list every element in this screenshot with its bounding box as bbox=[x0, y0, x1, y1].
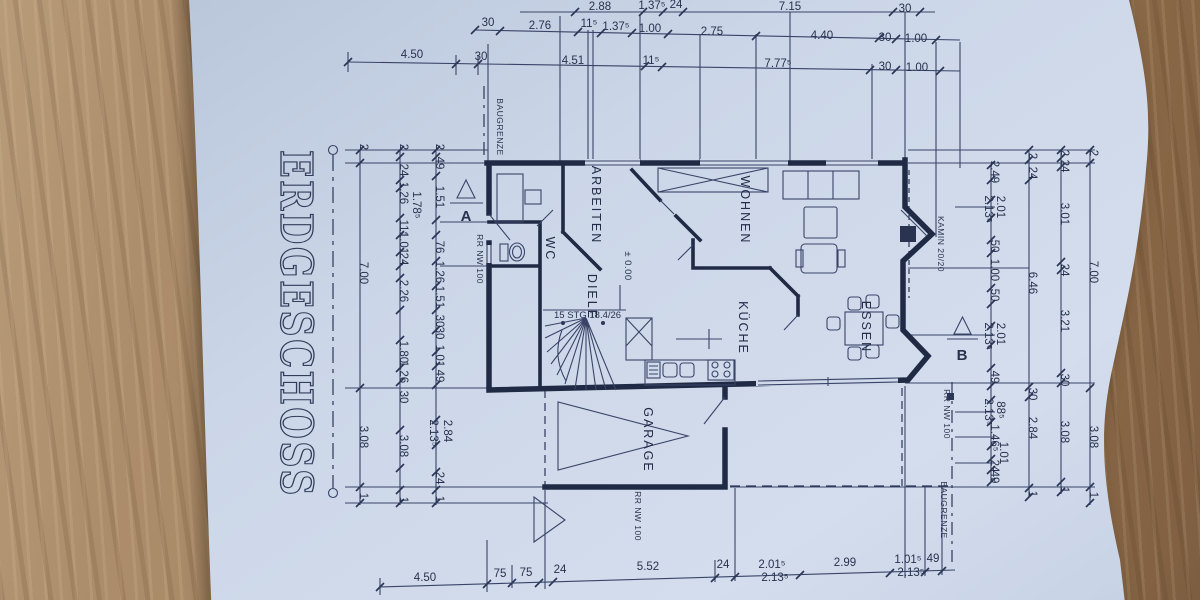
window-wc bbox=[485, 245, 493, 263]
dim-label: 24 bbox=[717, 559, 730, 571]
rr-label-right: RR NW 100 bbox=[942, 389, 952, 439]
dim-label: 2 bbox=[1087, 150, 1099, 156]
room-label-garage: GARAGE bbox=[641, 407, 655, 473]
dim-label: 1 bbox=[397, 497, 409, 503]
dim-label: 1 bbox=[1026, 491, 1038, 497]
dim-label: 24 bbox=[397, 253, 409, 266]
baugrenze-label-bottom: BAUGRENZE bbox=[939, 481, 949, 538]
dim-label: 7.77⁵ bbox=[764, 58, 791, 70]
dim-label: 50 bbox=[988, 240, 1000, 253]
dim-label: 2.13⁵ bbox=[982, 322, 994, 349]
dim-label: 2.99 bbox=[834, 557, 856, 569]
kamin-chimney-block bbox=[900, 226, 916, 242]
dim-label: 2.26 bbox=[397, 280, 409, 302]
rr-label-entry: RR NW 100 bbox=[475, 234, 485, 284]
dim-label: 1.51 bbox=[433, 186, 445, 208]
window-top-3 bbox=[826, 159, 878, 167]
level-label: ± 0.00 bbox=[622, 251, 633, 280]
dim-label: 1.37⁵ bbox=[638, 0, 665, 12]
dim-label: 3.08 bbox=[1087, 426, 1099, 448]
dim-label: 30 bbox=[397, 391, 409, 404]
dim-label: 24 bbox=[554, 564, 567, 576]
photo-of-floor-plan: ERDGESCHOSS 2.88 1.37⁵ 24 7.15 30 30 2.7… bbox=[0, 0, 1200, 600]
dim-label: 2 bbox=[433, 144, 445, 150]
dim-label: 1 bbox=[357, 493, 369, 499]
dim-label: 30 bbox=[879, 61, 892, 73]
dim-label: 50 bbox=[988, 289, 1000, 302]
stairs-label: 15 STG 18.4/26 bbox=[554, 310, 621, 321]
dim-label: 1 bbox=[1058, 487, 1070, 493]
room-label-essen: ESSEN bbox=[859, 301, 873, 353]
dim-label: 1 bbox=[433, 496, 445, 502]
dim-label: 2.13⁵ bbox=[897, 567, 924, 579]
dim-label: 75 bbox=[494, 568, 507, 580]
dim-label: 30 bbox=[475, 51, 488, 63]
dim-label: 49 bbox=[927, 553, 940, 565]
dim-label: 30 bbox=[433, 315, 445, 328]
room-label-arbeiten: ARBEITEN bbox=[589, 166, 603, 245]
dim-label: 5.52 bbox=[637, 561, 659, 573]
section-a-label: A bbox=[461, 208, 472, 225]
dim-label: 2.13⁵ bbox=[427, 419, 439, 446]
dim-label: 88⁵ bbox=[994, 401, 1006, 419]
dim-label: 1.00 bbox=[905, 33, 927, 45]
dim-label: 2 bbox=[1026, 153, 1038, 159]
dim-label: 3.08 bbox=[357, 426, 369, 448]
dim-label: 30 bbox=[482, 17, 495, 29]
dim-label: 2.84 bbox=[441, 420, 453, 443]
dim-label: 11⁵ bbox=[643, 55, 660, 67]
dim-label: 3.21 bbox=[1058, 310, 1070, 332]
dim-label: 7.15 bbox=[779, 1, 801, 13]
dim-label: 1 bbox=[1087, 492, 1099, 498]
plan-title: ERDGESCHOSS bbox=[270, 150, 321, 498]
dim-label: 2.13⁵ bbox=[982, 398, 994, 425]
dim-label: 6.46 bbox=[1026, 272, 1038, 294]
dim-label: 2.49 bbox=[988, 161, 1000, 183]
dim-label: 2.88 bbox=[589, 1, 611, 13]
dim-label: 1.26 bbox=[397, 361, 409, 383]
dim-label: 2.13⁵ bbox=[761, 572, 788, 584]
dim-label: 1.01 bbox=[433, 345, 445, 367]
dim-label: 1.01⁵ bbox=[894, 554, 921, 566]
dim-label: 2.75 bbox=[701, 26, 723, 38]
dim-label: 76 bbox=[433, 241, 445, 254]
dim-label: 2 bbox=[1058, 150, 1070, 156]
dim-label: 30 bbox=[1058, 374, 1070, 387]
dim-label: 4.50 bbox=[414, 572, 436, 584]
dim-label: 1.00 bbox=[988, 259, 1000, 281]
dim-label: 1.78⁵ bbox=[410, 191, 422, 218]
dim-label: 49 bbox=[433, 370, 445, 383]
dim-label: 24 bbox=[397, 164, 409, 177]
dim-label: 75 bbox=[520, 567, 533, 579]
dim-label: 3.08 bbox=[1058, 421, 1070, 443]
stair-dot-start bbox=[561, 321, 565, 325]
dim-label: 7.00 bbox=[1087, 261, 1099, 283]
dim-label: 4.40 bbox=[811, 30, 833, 42]
dim-label: 2 bbox=[397, 144, 409, 150]
dim-label: 30 bbox=[899, 3, 912, 15]
dim-label: 7.00 bbox=[357, 262, 369, 284]
dim-label: 49 bbox=[988, 371, 1000, 384]
room-label-wohnen: WOHNEN bbox=[738, 176, 752, 245]
dim-label: 2.01 bbox=[994, 196, 1006, 218]
dim-label: 24 bbox=[1026, 167, 1038, 180]
dim-label: 30 bbox=[433, 327, 445, 340]
dim-label: 24 bbox=[1058, 160, 1070, 173]
dim-label: 2.76 bbox=[529, 20, 551, 32]
dim-label: 2.84 bbox=[1026, 417, 1038, 440]
room-label-kueche: KÜCHE bbox=[736, 301, 750, 355]
dim-label: 1.37⁵ bbox=[602, 21, 629, 33]
dim-label: 2 bbox=[357, 144, 369, 150]
dim-label: 24 bbox=[1058, 264, 1070, 277]
room-label-wc: WC bbox=[543, 237, 557, 262]
dim-label: 49 bbox=[988, 471, 1000, 484]
dim-label: 4.51 bbox=[562, 55, 584, 67]
dim-label: 1.26 bbox=[397, 182, 409, 204]
window-top-2 bbox=[700, 159, 788, 167]
rr-label-garage: RR NW 100 bbox=[633, 491, 643, 541]
dim-label: 3.01 bbox=[1058, 203, 1070, 225]
stair-dot-end bbox=[601, 321, 605, 325]
dim-label: 2.01⁵ bbox=[758, 559, 785, 571]
baugrenze-label-top: BAUGRENZE bbox=[495, 98, 505, 155]
dim-label: 2.01 bbox=[994, 323, 1006, 345]
dim-label: 1.00 bbox=[639, 23, 661, 35]
dim-label: 30 bbox=[879, 32, 892, 44]
kamin-label: KAMIN 20/20 bbox=[936, 216, 946, 272]
dim-label: 2.13⁵ bbox=[982, 195, 994, 222]
section-b-label: B bbox=[957, 347, 968, 364]
floor-plan-svg: ERDGESCHOSS 2.88 1.37⁵ 24 7.15 30 30 2.7… bbox=[0, 0, 1200, 600]
dim-label: 1.51 bbox=[433, 286, 445, 308]
dim-label: 1.00 bbox=[906, 62, 928, 74]
dim-label: 3.08 bbox=[397, 435, 409, 457]
dim-label: 1.01 bbox=[397, 232, 409, 254]
paper-sheet bbox=[188, 0, 1148, 600]
dim-label: 11⁵ bbox=[581, 18, 598, 30]
dim-label: 49 bbox=[433, 157, 445, 170]
dim-label: 1.26 bbox=[433, 261, 445, 283]
dim-label: 24 bbox=[433, 472, 445, 485]
dim-label: 24 bbox=[670, 0, 683, 11]
dim-label: 4.50 bbox=[401, 49, 423, 61]
dim-label: 30 bbox=[1026, 388, 1038, 401]
